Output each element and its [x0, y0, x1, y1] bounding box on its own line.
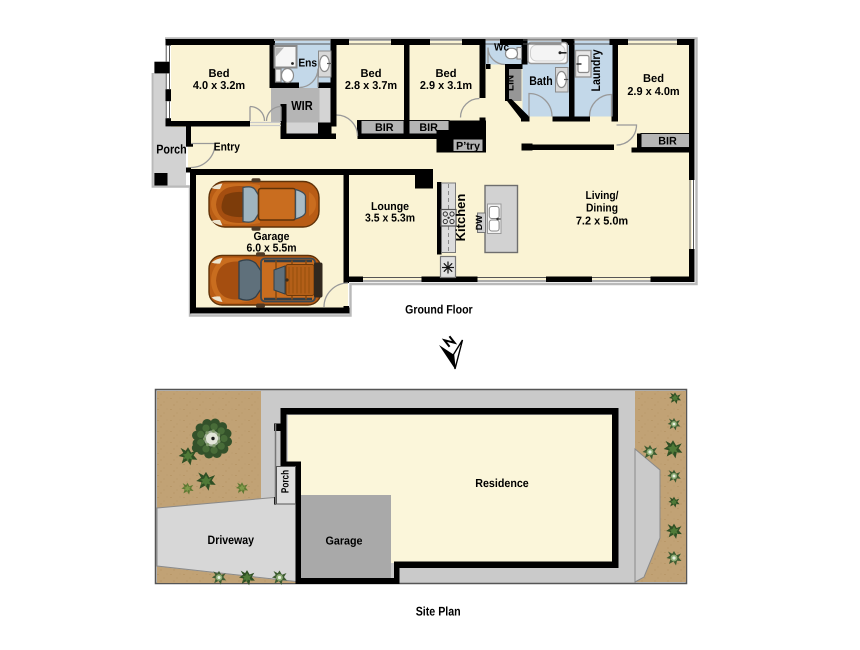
svg-text:3.5 x 5.3m: 3.5 x 5.3m	[365, 213, 415, 225]
svg-text:Entry: Entry	[214, 142, 241, 154]
svg-text:Bed: Bed	[643, 73, 664, 85]
svg-text:Garage: Garage	[254, 231, 290, 243]
svg-text:2.9 x 3.1m: 2.9 x 3.1m	[420, 80, 472, 92]
svg-text:Bed: Bed	[361, 68, 382, 80]
svg-text:BIR: BIR	[375, 122, 394, 134]
svg-text:WIR: WIR	[291, 98, 313, 113]
svg-text:2.9 x 4.0m: 2.9 x 4.0m	[627, 86, 679, 98]
svg-text:Bed: Bed	[209, 68, 230, 80]
svg-text:Living/: Living/	[586, 190, 620, 202]
svg-text:Laundry: Laundry	[589, 49, 603, 91]
svg-text:P’try: P’try	[456, 141, 481, 153]
svg-text:Lounge: Lounge	[371, 201, 409, 213]
svg-text:7.2 x 5.0m: 7.2 x 5.0m	[576, 216, 628, 228]
svg-text:BIR: BIR	[419, 122, 438, 134]
svg-text:Dining: Dining	[586, 203, 618, 215]
svg-text:LIN: LIN	[506, 75, 517, 91]
svg-text:2.8 x 3.7m: 2.8 x 3.7m	[345, 80, 397, 92]
svg-text:Bed: Bed	[436, 68, 457, 80]
svg-text:Kitchen: Kitchen	[453, 194, 468, 242]
svg-text:Ens: Ens	[298, 58, 317, 70]
svg-text:Site Plan: Site Plan	[416, 604, 461, 618]
svg-text:Wc: Wc	[494, 42, 509, 54]
svg-text:Ground Floor: Ground Floor	[405, 303, 473, 317]
svg-text:Porch: Porch	[280, 470, 292, 493]
svg-text:6.0 x 5.5m: 6.0 x 5.5m	[247, 242, 297, 254]
svg-text:Porch: Porch	[156, 142, 187, 157]
svg-text:Driveway: Driveway	[208, 533, 255, 547]
svg-text:Bath: Bath	[529, 74, 553, 88]
svg-text:4.0 x 3.2m: 4.0 x 3.2m	[193, 80, 245, 92]
svg-text:DW: DW	[474, 215, 484, 230]
svg-text:BIR: BIR	[658, 136, 677, 148]
svg-text:Garage: Garage	[326, 536, 363, 548]
svg-text:Residence: Residence	[475, 477, 529, 490]
